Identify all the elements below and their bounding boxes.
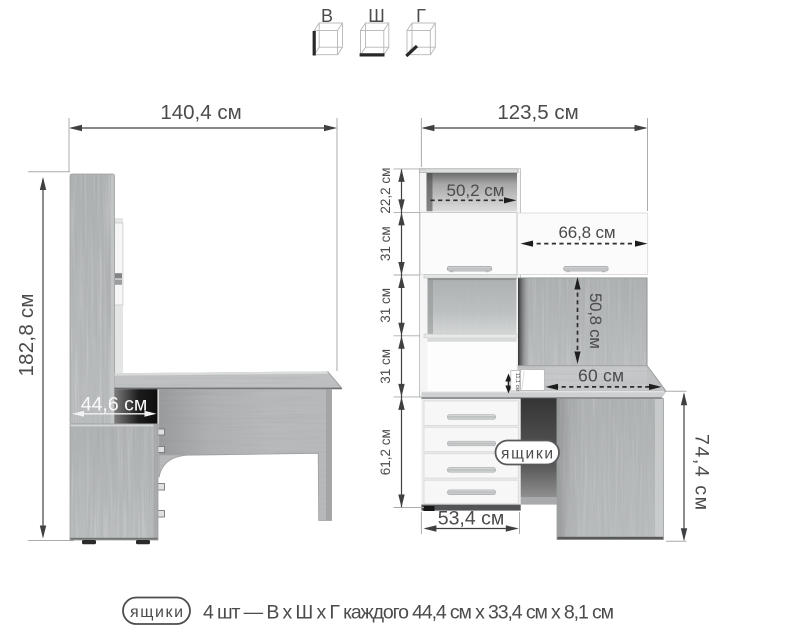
svg-text:60 см: 60 см xyxy=(578,366,624,386)
svg-text:4 шт — В х Ш х Г каждого 44,4: 4 шт — В х Ш х Г каждого 44,4 см х 33,4 … xyxy=(203,602,614,624)
svg-text:66,8 см: 66,8 см xyxy=(559,223,616,242)
svg-text:74,4 см: 74,4 см xyxy=(691,434,713,510)
svg-text:ящики: ящики xyxy=(130,604,183,621)
svg-text:22,2 см: 22,2 см xyxy=(378,168,393,214)
svg-text:11,1 см: 11,1 см xyxy=(514,373,520,392)
svg-text:61,2 см: 61,2 см xyxy=(378,429,393,475)
svg-text:182,8 см: 182,8 см xyxy=(15,294,38,377)
svg-text:50,8 см: 50,8 см xyxy=(586,293,605,349)
svg-text:140,4 см: 140,4 см xyxy=(160,101,241,124)
svg-text:44,6 см: 44,6 см xyxy=(81,394,148,416)
svg-text:53,4 см: 53,4 см xyxy=(438,508,505,530)
svg-text:123,5 см: 123,5 см xyxy=(497,101,578,124)
svg-text:31 см: 31 см xyxy=(378,349,393,384)
svg-text:31 см: 31 см xyxy=(378,288,393,323)
svg-text:ящики: ящики xyxy=(501,446,553,463)
svg-text:50,2 см: 50,2 см xyxy=(447,181,505,200)
svg-text:31 см: 31 см xyxy=(378,226,393,261)
